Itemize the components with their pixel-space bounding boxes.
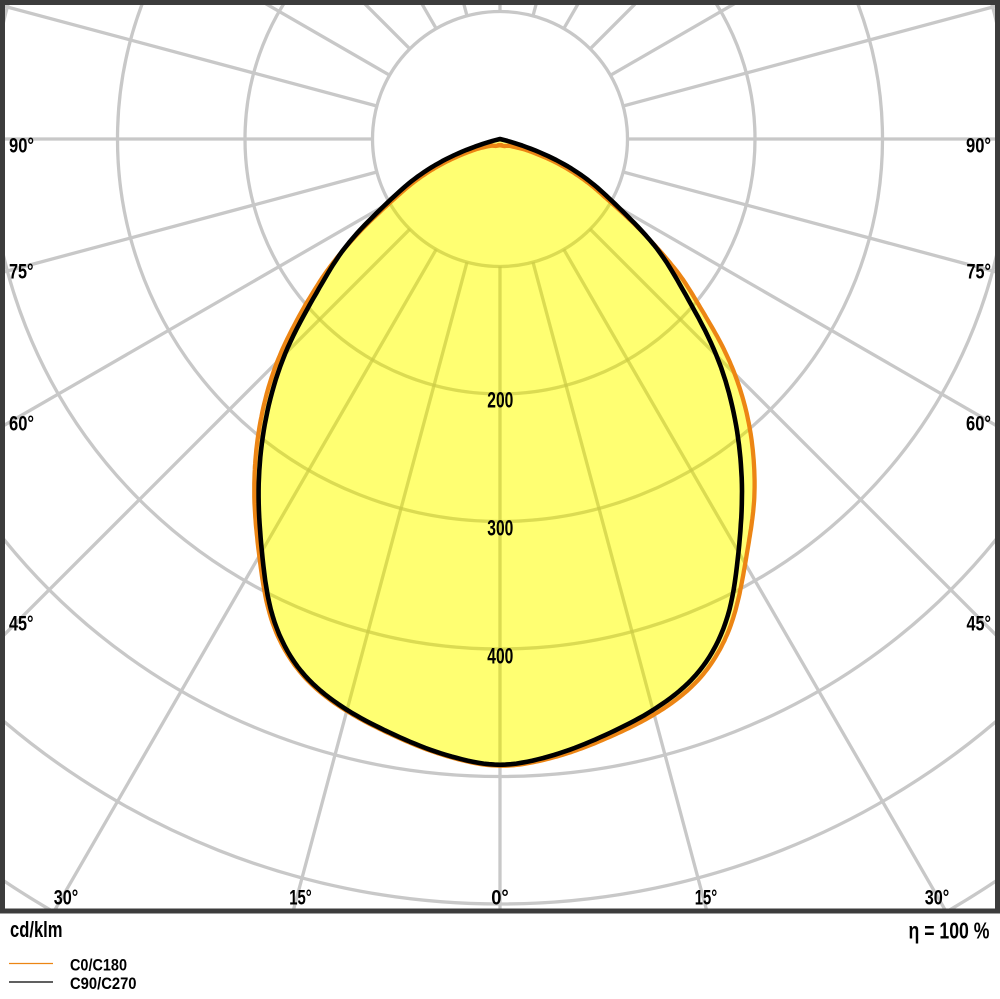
svg-text:90°: 90°	[9, 135, 34, 158]
svg-text:45°: 45°	[967, 613, 992, 636]
svg-text:η = 100 %: η = 100 %	[909, 918, 990, 944]
svg-text:75°: 75°	[967, 261, 992, 284]
svg-text:60°: 60°	[9, 413, 34, 436]
svg-text:300: 300	[487, 515, 513, 540]
svg-text:C0/C180: C0/C180	[70, 957, 127, 975]
svg-text:0°: 0°	[491, 887, 509, 910]
svg-text:cd/klm: cd/klm	[10, 917, 63, 942]
svg-text:C90/C270: C90/C270	[70, 975, 137, 993]
svg-text:30°: 30°	[925, 887, 950, 910]
svg-text:45°: 45°	[9, 613, 34, 636]
svg-text:30°: 30°	[54, 887, 79, 910]
svg-text:60°: 60°	[966, 413, 991, 436]
svg-text:400: 400	[487, 643, 513, 668]
svg-text:90°: 90°	[966, 135, 991, 158]
svg-text:75°: 75°	[9, 261, 34, 284]
svg-text:200: 200	[487, 387, 513, 412]
svg-text:15°: 15°	[289, 887, 312, 910]
svg-text:15°: 15°	[695, 887, 718, 910]
